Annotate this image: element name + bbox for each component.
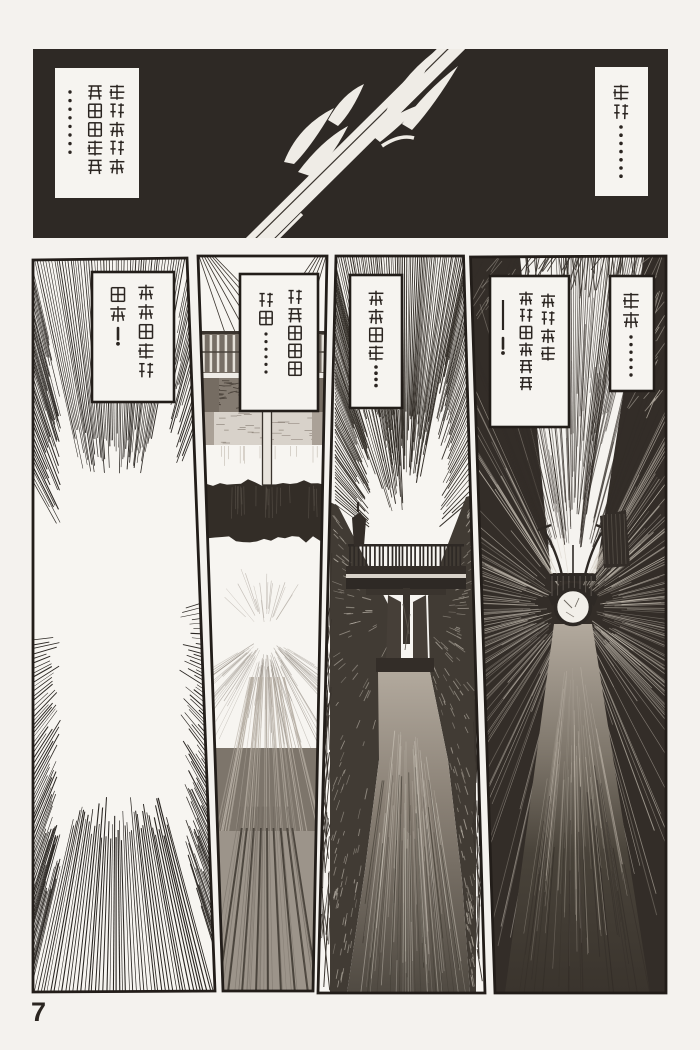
svg-text:7: 7 <box>31 997 46 1027</box>
